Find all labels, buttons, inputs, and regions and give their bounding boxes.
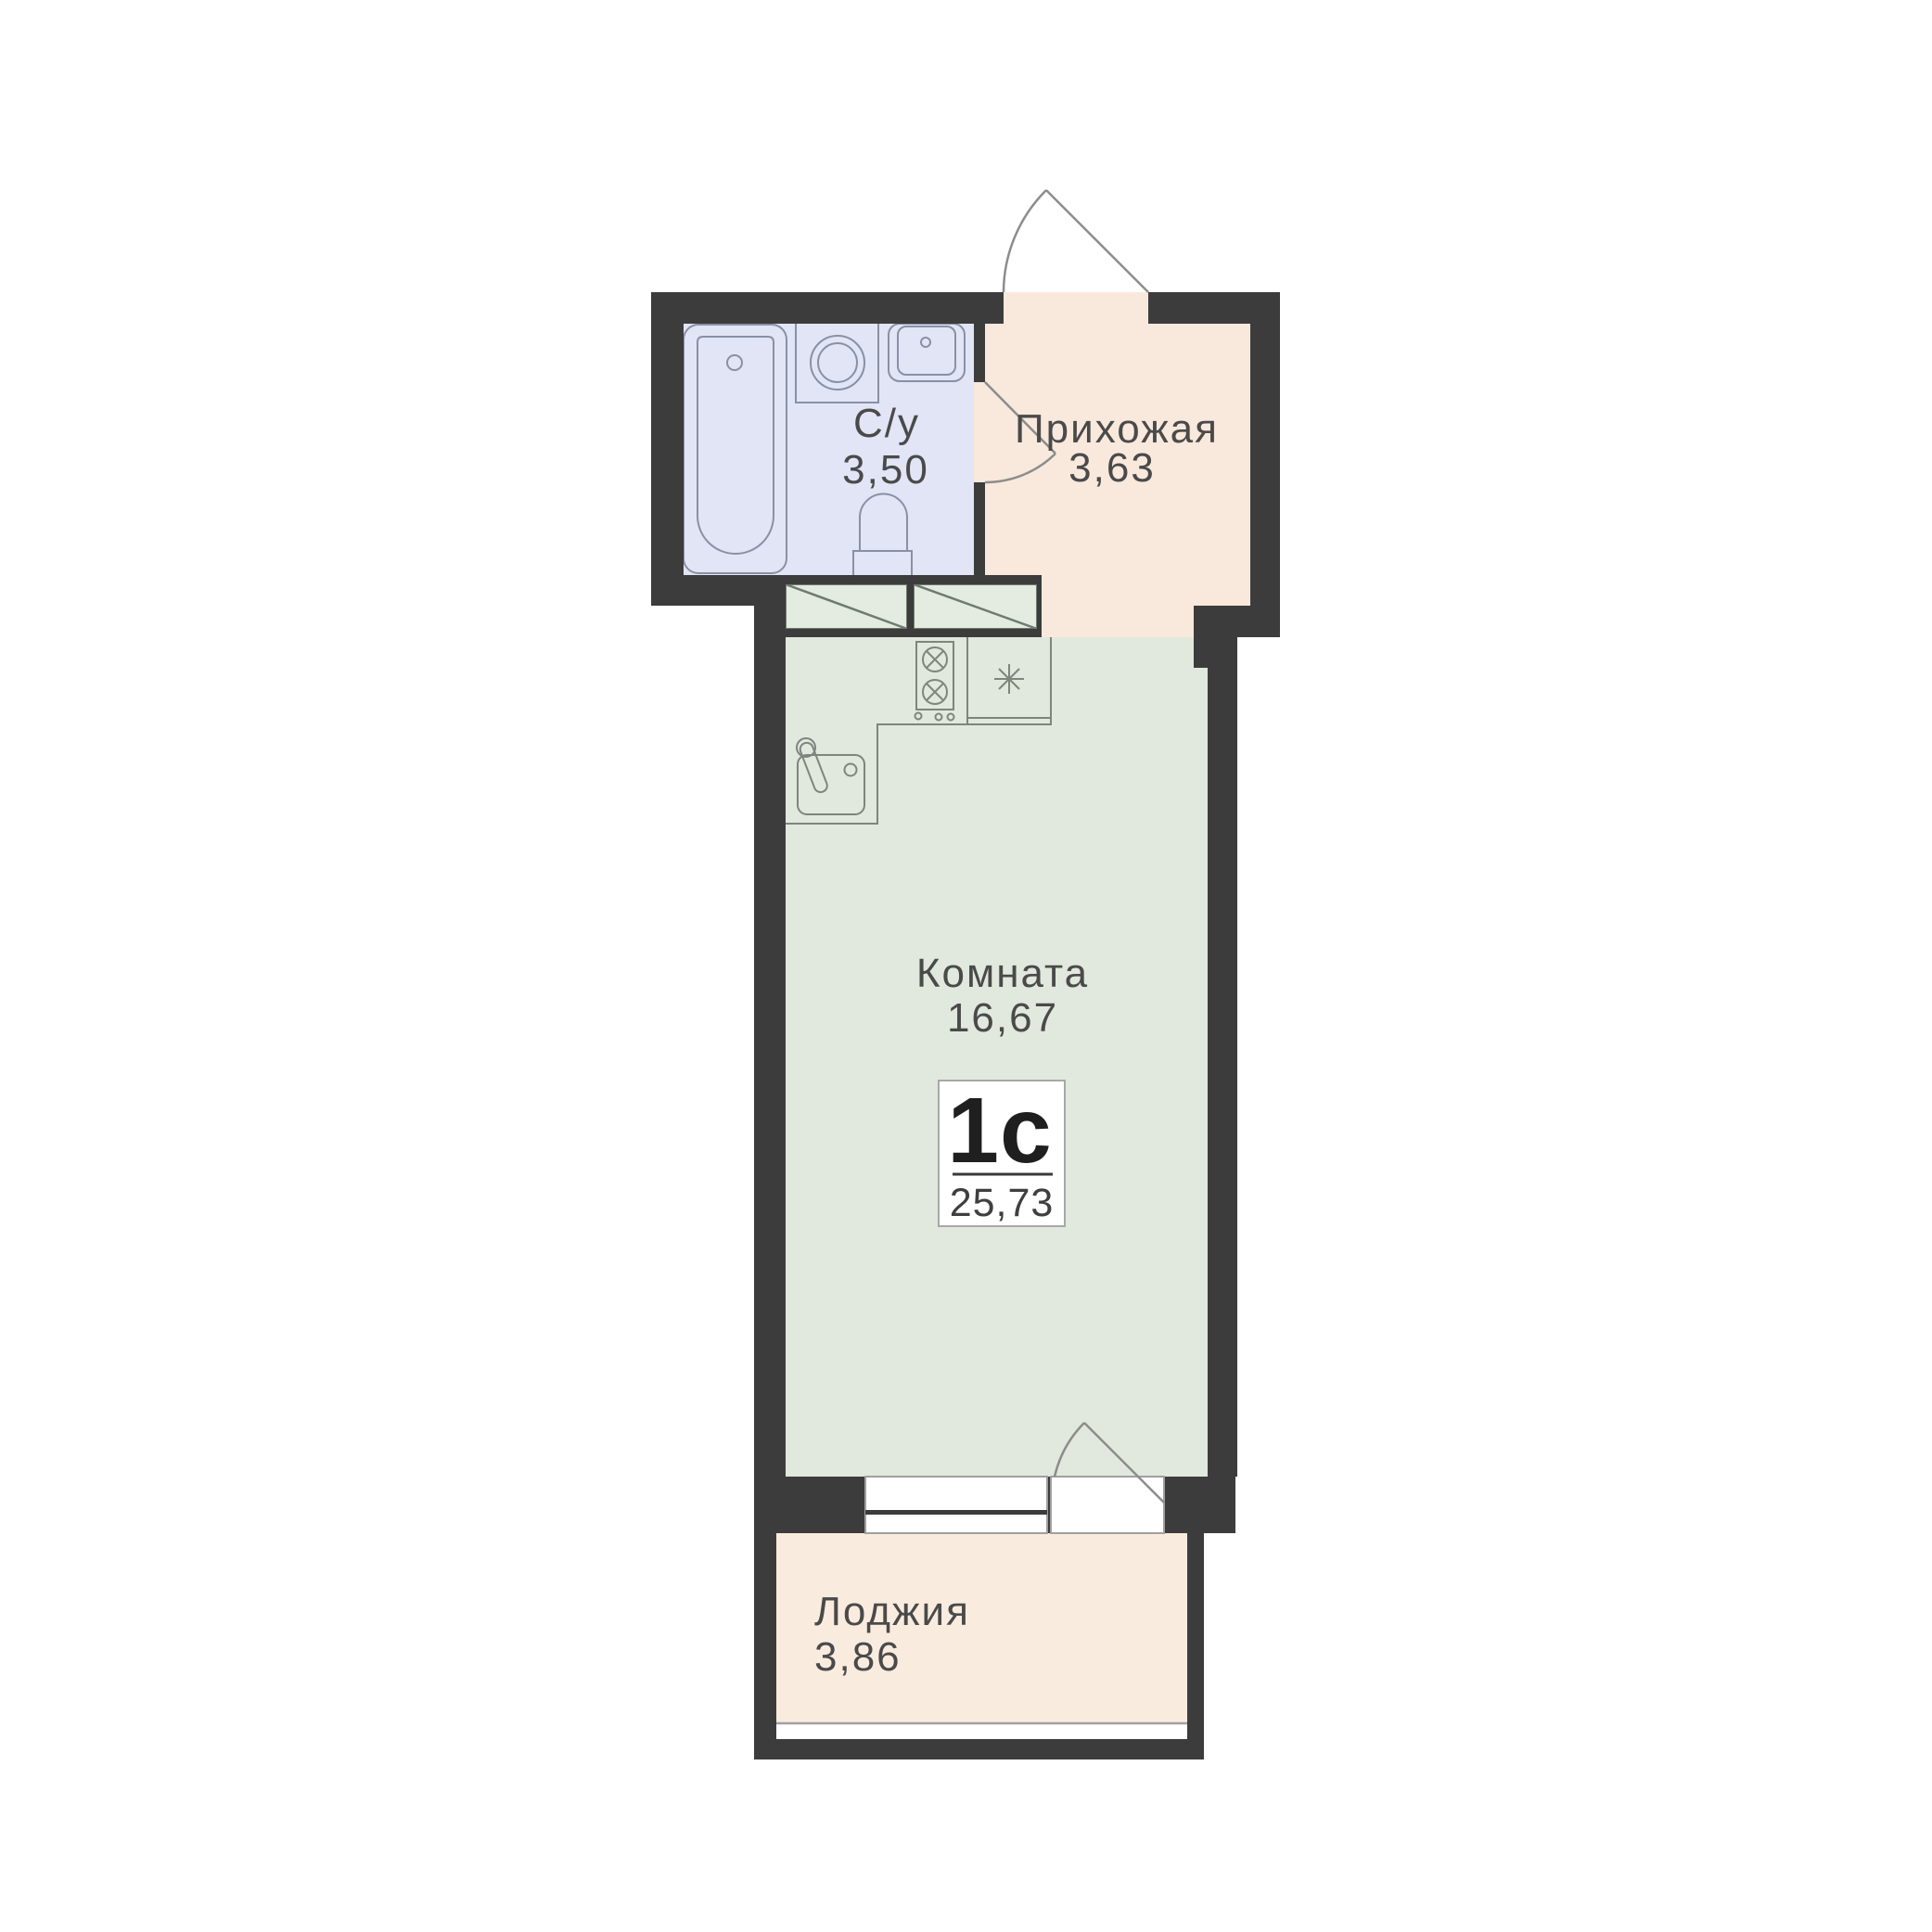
wall-window-right-pier <box>1164 1477 1235 1533</box>
wall-closet-bottom-band <box>754 629 1042 637</box>
wall-loggia-left <box>754 1533 776 1759</box>
wall-bath-partition-top <box>974 324 985 382</box>
wall-room-right <box>1208 606 1237 1477</box>
wall-window-left-pier <box>786 1477 865 1533</box>
wall-closet-cap <box>1037 584 1042 629</box>
hallway-passage-floor <box>1042 606 1194 637</box>
unit-total-area: 25,73 <box>950 1181 1055 1225</box>
loggia-label: Лоджия <box>814 1589 970 1634</box>
wall-step-stub <box>1194 637 1208 668</box>
bathroom-door-threshold <box>974 382 985 482</box>
entrance-threshold <box>1004 292 1148 324</box>
wardrobe-icon <box>786 584 907 629</box>
wall-closet-top-band <box>786 575 1042 584</box>
hallway-area: 3,63 <box>1068 445 1156 491</box>
wall-loggia-bottom <box>754 1739 1204 1759</box>
floor-plan: С/у 3,50 Прихожая 3,63 Комната 16,67 Лод… <box>0 0 1932 1932</box>
wall-closet-separator <box>907 584 914 629</box>
window-icon <box>865 1477 1047 1533</box>
bathroom-label: С/у <box>853 401 920 446</box>
living-room-area: 16,67 <box>947 995 1058 1041</box>
wall-room-left <box>754 575 786 1533</box>
wall-bath-partition-bottom <box>974 482 985 584</box>
wall-top-left <box>651 292 1004 324</box>
bathroom-area: 3,50 <box>842 447 929 493</box>
entrance-door-swing-icon <box>1004 190 1148 292</box>
wall-right-outer <box>1250 292 1280 637</box>
wall-bathroom-left <box>651 292 684 606</box>
unit-badge: 1с 25,73 <box>939 1079 1065 1226</box>
wardrobe-icon <box>914 584 1037 629</box>
floor-plan-canvas: С/у 3,50 Прихожая 3,63 Комната 16,67 Лод… <box>0 0 1932 1932</box>
unit-type-label: 1с <box>947 1079 1052 1183</box>
loggia-glazing-icon <box>776 1723 1187 1739</box>
living-room-label: Комната <box>916 951 1089 996</box>
wall-loggia-right <box>1187 1533 1204 1739</box>
loggia-area: 3,86 <box>814 1634 902 1680</box>
